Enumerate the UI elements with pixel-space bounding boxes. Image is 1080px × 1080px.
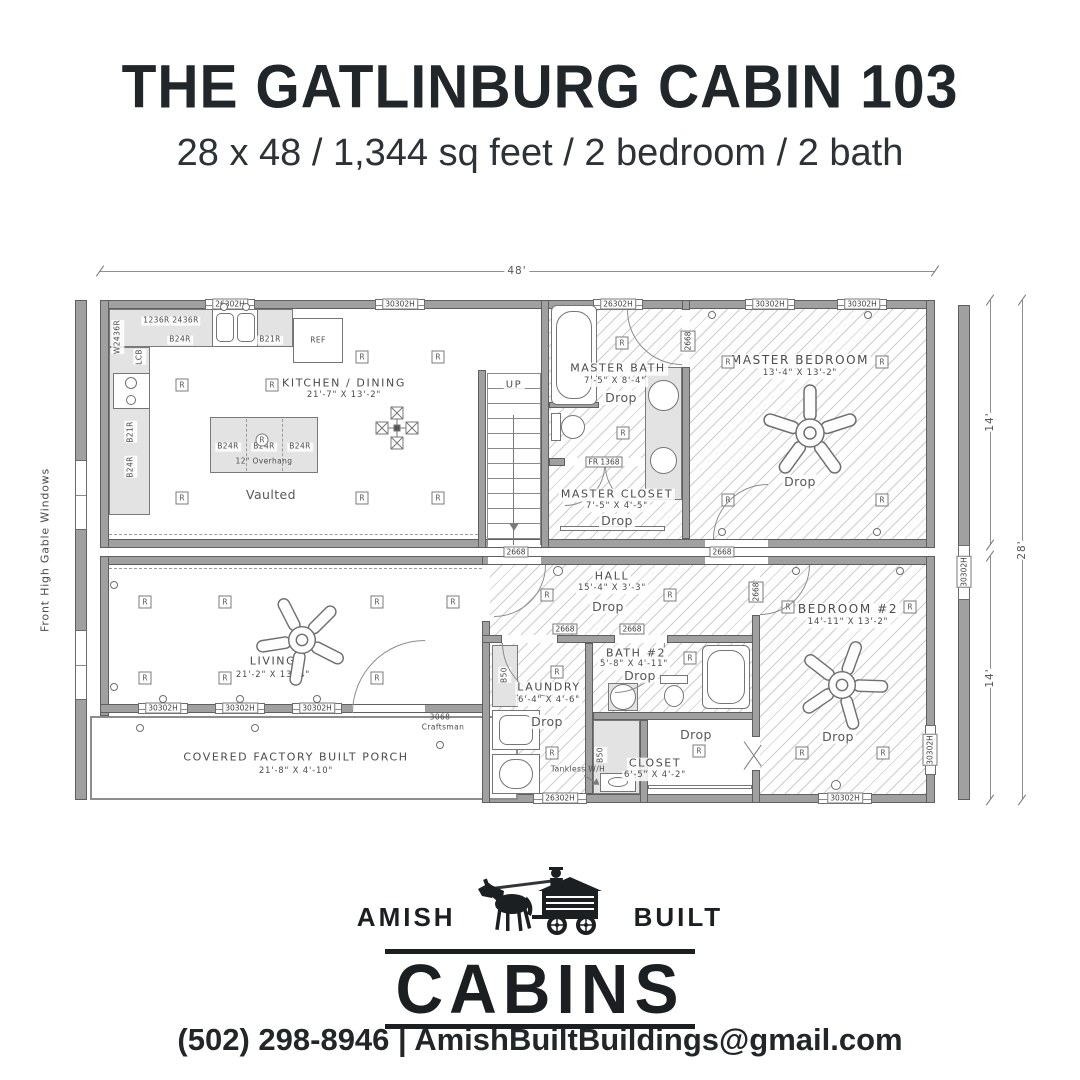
window-tag: 30302H (844, 299, 880, 310)
room-dims: 15'-4" X 3'-3" (576, 584, 648, 594)
window-tag: 26302H (542, 793, 578, 804)
recessed-light: R (432, 492, 445, 505)
logo-word-right: BUILT (634, 902, 724, 947)
ceiling-fan (760, 383, 860, 483)
ceiling-note: Drop (678, 728, 714, 742)
vanity-sink (648, 380, 679, 411)
door-tag: 2668 (749, 581, 764, 602)
recessed-light: R (796, 747, 809, 760)
wall (482, 635, 502, 643)
island-overhang-note: 12" Overhang (234, 458, 295, 467)
logo-word-left: AMISH (357, 902, 456, 947)
recessed-light: R (541, 589, 554, 602)
company-logo: AMISH (0, 855, 1080, 1031)
ceiling-fan (795, 638, 890, 733)
left-gable-wall (75, 300, 87, 800)
page-subtitle: 28 x 48 / 1,344 sq feet / 2 bedroom / 2 … (0, 132, 1080, 175)
cabinet-tag: B24R (125, 456, 138, 478)
recessed-light: R (356, 351, 369, 364)
room-dims: 7'-5" X 4'-5" (584, 502, 650, 512)
wall-light (896, 567, 904, 575)
toilet-tank (660, 675, 688, 684)
wall (752, 615, 760, 737)
room-dims: 21'-8" X 4'-10" (257, 767, 335, 777)
recessed-light: R (616, 337, 629, 350)
ceiling-break (109, 534, 478, 535)
faucet (220, 303, 228, 311)
refrigerator-tag: REF (308, 337, 327, 346)
contact-line: (502) 298-8946 | AmishBuiltBuildings@gma… (0, 1022, 1080, 1058)
recessed-light: R (617, 427, 630, 440)
wall-light (708, 311, 716, 319)
recessed-light: R (139, 596, 152, 609)
recessed-light: R (551, 666, 564, 679)
ceiling-note: Drop (599, 514, 635, 528)
porch-light (136, 724, 144, 732)
ceiling-note: Drop (622, 669, 658, 683)
dim-half-bottom-label: 14' (981, 668, 999, 687)
recessed-light: R (371, 596, 384, 609)
stair-direction-arrow (509, 523, 519, 536)
wall-light (110, 683, 118, 691)
window-tag: 30302H (827, 793, 863, 804)
room-dims: 21'-7" X 13'-2" (305, 391, 383, 401)
dim-width-label: 48' (504, 265, 529, 277)
tankless-note: Tankless W/H (549, 766, 607, 775)
window-tag: 30302H (222, 703, 258, 714)
porch-light (436, 741, 444, 749)
window-tag: 30302H (382, 299, 418, 310)
sink-bowl (216, 313, 234, 342)
door-tag: 2668 (619, 624, 644, 635)
door-tag: FR 1368 (586, 457, 623, 468)
recessed-light: R (432, 351, 445, 364)
room-dims: 6'-4" X 4'-6" (516, 696, 582, 706)
wall (752, 770, 760, 803)
recessed-light: R (876, 494, 889, 507)
toilet-bowl (561, 415, 585, 439)
burner (125, 377, 137, 389)
room-name: COVERED FACTORY BUILT PORCH (181, 752, 410, 765)
ceiling-note: Drop (603, 391, 639, 405)
door-tag: 2668 (681, 330, 696, 351)
recessed-light: R (139, 672, 152, 685)
recessed-light: R (356, 492, 369, 505)
recessed-light: R (447, 596, 460, 609)
room-name: MASTER BEDROOM (729, 354, 871, 368)
recessed-light: R (546, 747, 559, 760)
wall-light (110, 581, 118, 589)
cabinet-tag: LCB (134, 349, 147, 365)
wall-light (873, 528, 881, 536)
toilet-tank (551, 413, 561, 441)
recessed-light: R (722, 356, 735, 369)
contact-phone: (502) 298-8946 (177, 1022, 389, 1057)
front-gable-note: Front High Gable Windows (38, 468, 55, 632)
floor-plan: 48' 14' 14' 28' Front High Gable Windows… (0, 255, 1080, 840)
room-name: MASTER CLOSET (559, 489, 675, 502)
room-dims: 7'-5" X 8'-4" (582, 377, 648, 387)
wall (100, 300, 109, 548)
header: THE GATLINBURG CABIN 103 28 x 48 / 1,344… (0, 58, 1080, 175)
cabinet-tag: B24R (167, 336, 193, 345)
left-gable-window (75, 460, 87, 530)
wall-light (236, 695, 244, 703)
recessed-light: R (371, 672, 384, 685)
recessed-light: R (176, 492, 189, 505)
cabinet-tag: B21R (125, 421, 138, 443)
window-tag: 30302H (957, 556, 972, 588)
ceiling-break (109, 568, 482, 569)
door-opening (488, 557, 541, 564)
room-name: LAUNDRY (515, 682, 583, 695)
closet-shelf (648, 785, 752, 789)
recessed-light: R (664, 589, 677, 602)
cabinet-tag: B24R (215, 443, 241, 452)
recessed-light: R (219, 672, 232, 685)
bathtub-basin (707, 650, 745, 704)
wall (541, 300, 549, 548)
cabinet-tag: B50 (595, 747, 608, 763)
recessed-light: R (877, 747, 890, 760)
room-dims: 13'-4" X 13'-2" (761, 369, 839, 379)
logo-name: CABINS (0, 954, 1080, 1023)
room-dims: 6'-5" X 4'-2" (622, 771, 688, 781)
recessed-light: R (256, 434, 269, 447)
stairs-up-label: UP (504, 379, 525, 391)
ceiling-note: Drop (590, 600, 626, 614)
bifold-door (744, 745, 762, 770)
left-gable-window (75, 630, 87, 700)
ceiling-note: Drop (529, 715, 565, 729)
recessed-light: R (876, 356, 889, 369)
room-name: MASTER BATH (568, 363, 668, 376)
cabinet-tag: W2436R (112, 320, 125, 354)
page-title: THE GATLINBURG CABIN 103 (0, 56, 1080, 121)
ceiling-note: Vaulted (244, 488, 298, 502)
vanity-sink (650, 447, 677, 474)
wall (557, 635, 615, 643)
wall (667, 635, 755, 643)
room-name: BEDROOM #2 (796, 603, 900, 617)
window-tag: 30302H (145, 703, 181, 714)
wall (478, 370, 486, 548)
room-name: HALL (593, 571, 631, 584)
wall (100, 556, 109, 716)
ceiling-light (553, 566, 563, 576)
dim-half-top-label: 14' (981, 412, 999, 431)
staircase (487, 373, 541, 545)
window-tag: 26302H (600, 299, 636, 310)
sink-bowl (237, 313, 255, 342)
window-tag: 30302H (752, 299, 788, 310)
wall-light (313, 695, 321, 703)
contact-separator: | (398, 1022, 407, 1057)
wall (682, 300, 690, 310)
recessed-light: R (904, 601, 917, 614)
recessed-light: R (219, 596, 232, 609)
ceiling-light (831, 780, 841, 790)
wall (549, 458, 565, 466)
cabinet-tag: B21R (257, 336, 283, 345)
wall-light (864, 311, 872, 319)
recessed-light: R (176, 379, 189, 392)
horse-and-wagon-icon (470, 855, 620, 947)
door-opening (705, 557, 768, 564)
cabinet-tag: B24R (287, 443, 313, 452)
wall-light (159, 695, 167, 703)
cabinet-tag: 1236R 2436R (141, 317, 200, 326)
window-tag: 30302H (299, 703, 335, 714)
window-tag: 30302H (923, 734, 938, 766)
porch-light (251, 724, 259, 732)
recessed-light: R (266, 379, 279, 392)
door-tag: 2668 (552, 624, 577, 635)
burner (126, 395, 136, 405)
fan-light-symbol (375, 406, 419, 450)
wall (926, 300, 935, 548)
wall (682, 367, 690, 539)
room-dims: 14'-11" X 13'-2" (806, 618, 891, 628)
front-door-style: Craftsman (420, 724, 467, 733)
faucet (242, 303, 250, 311)
front-door-size: 3068 (428, 714, 453, 723)
recessed-light: R (684, 652, 697, 665)
wall (593, 712, 760, 720)
wall (482, 621, 490, 803)
front-door-swing (352, 640, 425, 713)
room-name: CLOSET (627, 758, 683, 771)
ceiling-fan (255, 593, 350, 688)
toilet-bowl (664, 685, 684, 707)
dryer-drum (499, 759, 533, 789)
dim-total-label: 28' (1013, 540, 1031, 559)
door-tag: 2668 (503, 547, 528, 558)
recessed-light: R (693, 745, 706, 758)
room-name: KITCHEN / DINING (280, 378, 408, 391)
contact-email: AmishBuiltBuildings@gmail.com (414, 1022, 902, 1057)
washer-drum (499, 715, 533, 745)
door-tag: 2668 (709, 547, 734, 558)
